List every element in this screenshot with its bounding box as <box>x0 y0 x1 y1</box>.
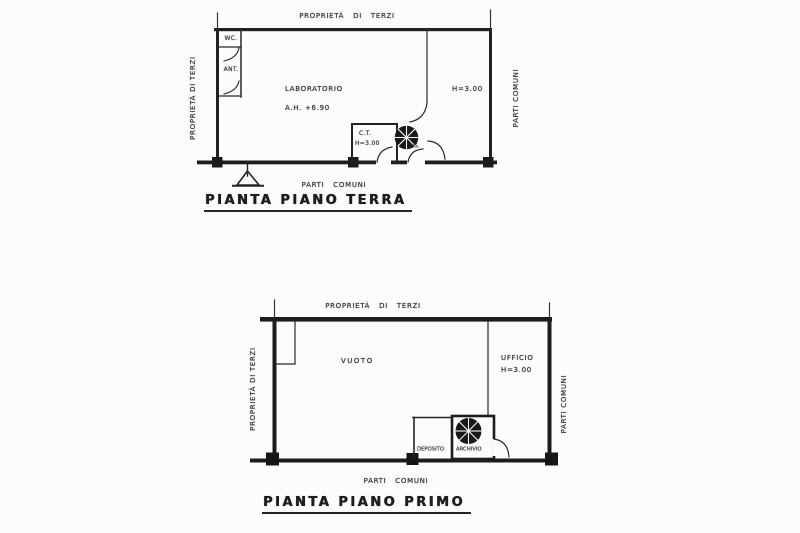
door-arc <box>410 103 427 122</box>
label-room-archivio: ARCHIVIO <box>456 446 482 452</box>
column-marker <box>483 157 494 168</box>
ground-floor-plan <box>197 10 497 186</box>
column-marker <box>407 453 419 465</box>
wall-right <box>548 317 552 459</box>
triangle-symbol <box>233 164 263 186</box>
label-room-dis: DIS. <box>409 143 420 149</box>
column-marker <box>212 157 223 168</box>
wall-bottom <box>250 459 558 463</box>
wall-right <box>489 28 492 164</box>
label-room-ufficio: UFFICIO <box>501 354 534 362</box>
wall-top <box>214 28 492 31</box>
door-arc <box>428 141 445 159</box>
label-room-vuoto: VUOTO <box>341 357 374 365</box>
ground-floor-title: PIANTA PIANO TERRA <box>204 193 412 212</box>
label-boundary-left-first: PROPRIETÀ DI TERZI <box>249 334 257 444</box>
label-hall-height: H=3.00 <box>452 85 483 93</box>
door-opening <box>407 160 425 165</box>
label-room-ct: C.T. <box>359 130 371 137</box>
door-opening <box>493 439 496 456</box>
label-laboratorio-height: A.H. +6.90 <box>285 104 330 112</box>
label-ufficio-height: H=3.00 <box>501 366 532 374</box>
wall-left <box>273 317 277 459</box>
door-arc <box>494 439 509 457</box>
wall-top <box>260 317 552 322</box>
first-floor-plan <box>250 300 558 466</box>
label-boundary-right-ground: PARTI COMUNI <box>512 53 520 143</box>
door-arc <box>224 48 239 61</box>
label-room-wc: WC. <box>222 35 240 42</box>
label-room-ant: ANT. <box>221 66 241 73</box>
void-edge-lines <box>277 322 295 364</box>
spiral-staircase-icon <box>456 418 482 444</box>
column-marker <box>545 453 558 466</box>
label-boundary-top-ground: PROPRIETÀ DI TERZI <box>282 12 412 20</box>
label-boundary-bottom-ground: PARTI COMUNI <box>296 181 372 189</box>
label-boundary-bottom-first: PARTI COMUNI <box>358 477 434 485</box>
label-room-deposito: DEPOSITO <box>417 446 444 452</box>
plan-linework <box>0 0 800 533</box>
wall-bottom <box>197 161 497 165</box>
door-arc <box>377 147 392 162</box>
label-boundary-top-first: PROPRIETÀ DI TERZI <box>308 302 438 310</box>
floor-plan-scan: PROPRIETÀ DI TERZI PROPRIETÀ DI TERZI PA… <box>0 0 800 533</box>
door-opening <box>376 160 391 165</box>
label-boundary-left-ground: PROPRIETÀ DI TERZI <box>189 43 197 153</box>
door-arc <box>224 81 239 94</box>
label-room-laboratorio: LABORATORIO <box>285 85 343 93</box>
column-marker <box>266 453 279 466</box>
label-boundary-right-first: PARTI COMUNI <box>560 359 568 449</box>
label-ct-height: H=3.00 <box>355 140 380 147</box>
first-floor-title: PIANTA PIANO PRIMO <box>262 495 471 514</box>
